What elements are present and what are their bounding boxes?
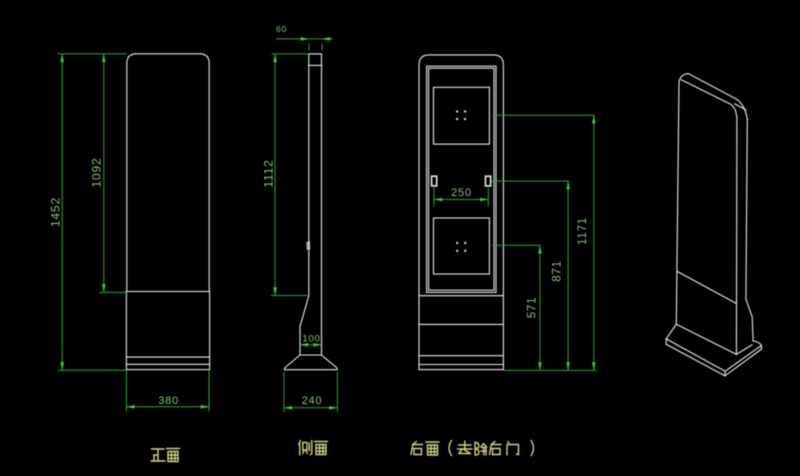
svg-text:100: 100 xyxy=(302,334,320,345)
svg-text:1092: 1092 xyxy=(90,158,104,188)
svg-text:571: 571 xyxy=(527,297,539,319)
svg-text:60: 60 xyxy=(276,24,287,34)
svg-text:380: 380 xyxy=(158,395,179,407)
svg-text:250: 250 xyxy=(451,187,472,199)
svg-text:871: 871 xyxy=(552,260,564,282)
svg-text:1452: 1452 xyxy=(49,197,63,227)
svg-text:1112: 1112 xyxy=(262,159,276,187)
svg-text:1171: 1171 xyxy=(577,217,589,245)
svg-text:240: 240 xyxy=(302,395,323,407)
